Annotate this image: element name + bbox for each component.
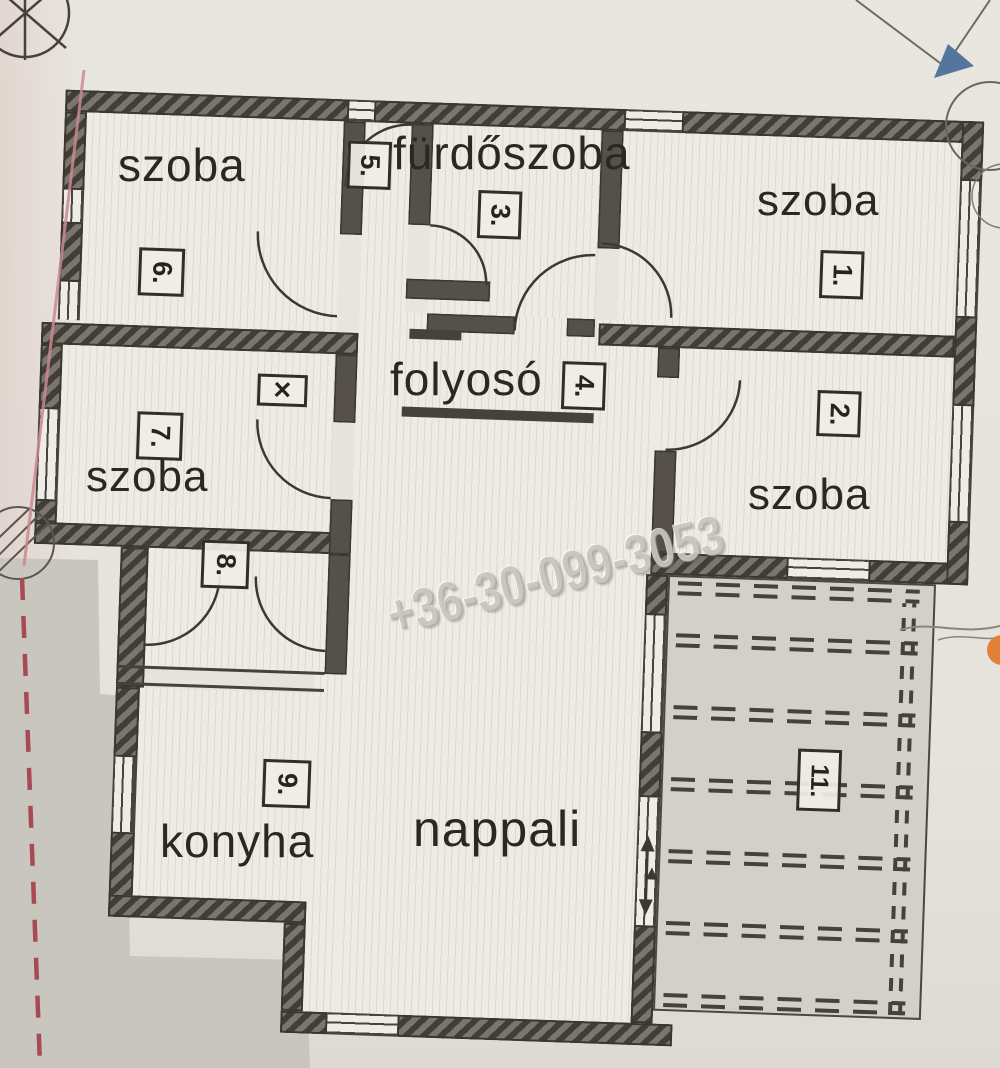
floor-plan-page: 5. 3. 6. 1. 2. 4. 7. ✕ 8. 9. 11. [0,0,1000,1068]
room-label-szoba-1: szoba [757,176,879,226]
room-labels-layer: szoba fürdőszoba szoba szoba folyosó szo… [0,0,1000,1068]
room-label-nappali: nappali [413,800,581,858]
room-label-szoba-6: szoba [118,138,246,192]
room-label-furdoszoba: fürdőszoba [393,126,631,180]
room-label-folyoso: folyosó [390,352,543,406]
room-label-konyha: konyha [160,814,314,868]
room-label-szoba-7: szoba [86,452,208,502]
